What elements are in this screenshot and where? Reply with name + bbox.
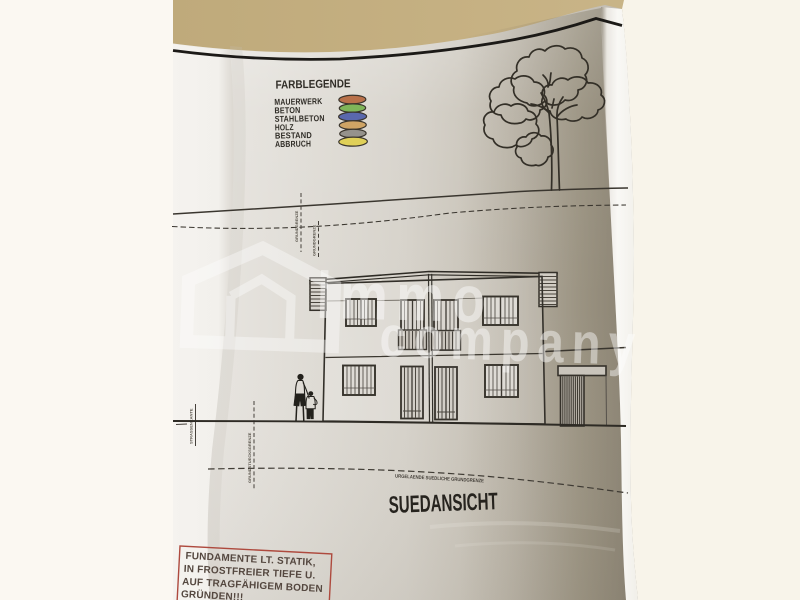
svg-text:STRASSENKANTE: STRASSENKANTE <box>189 408 194 444</box>
svg-text:ABBRUCH: ABBRUCH <box>275 138 311 149</box>
svg-text:FARBLEGENDE: FARBLEGENDE <box>275 77 350 91</box>
svg-text:GRUNDGRENZE: GRUNDGRENZE <box>294 210 299 242</box>
svg-text:GRUNDGRENZE: GRUNDGRENZE <box>312 224 317 256</box>
svg-text:company: company <box>379 305 644 379</box>
svg-text:GRUNDSTUECKSGRENZE: GRUNDSTUECKSGRENZE <box>247 432 252 483</box>
svg-text:SUEDANSICHT: SUEDANSICHT <box>388 488 498 519</box>
